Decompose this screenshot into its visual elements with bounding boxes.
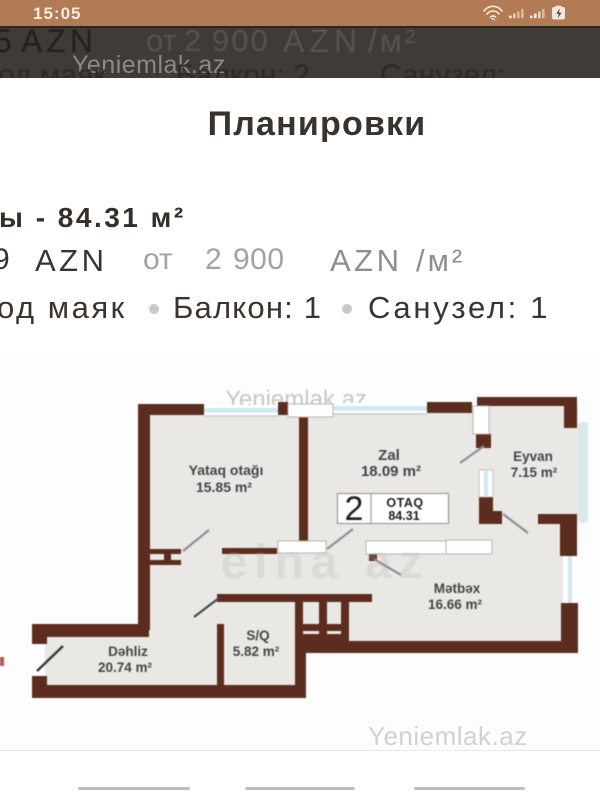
svg-text:Zal: Zal (378, 447, 400, 464)
svg-text:7.15 m²: 7.15 m² (511, 465, 558, 480)
svg-text:5.82 m²: 5.82 m² (233, 644, 280, 659)
svg-text:Eyvan: Eyvan (513, 449, 553, 464)
svg-text:eina az: eina az (220, 536, 429, 589)
svg-text:18.09 m²: 18.09 m² (361, 463, 421, 480)
svg-text:15.85 m²: 15.85 m² (196, 479, 252, 495)
svg-text:OTAQ: OTAQ (386, 496, 423, 510)
svg-text:16.66 m²: 16.66 m² (428, 597, 483, 612)
svg-text:Yataq otağı: Yataq otağı (189, 462, 264, 478)
svg-text:S/Q: S/Q (246, 628, 269, 643)
svg-text:Mətbəx: Mətbəx (434, 581, 481, 596)
svg-text:20.74 m²: 20.74 m² (98, 660, 153, 675)
svg-text:84.31: 84.31 (388, 509, 419, 523)
svg-text:Dəhliz: Dəhliz (108, 644, 148, 659)
svg-text:2: 2 (345, 490, 364, 528)
